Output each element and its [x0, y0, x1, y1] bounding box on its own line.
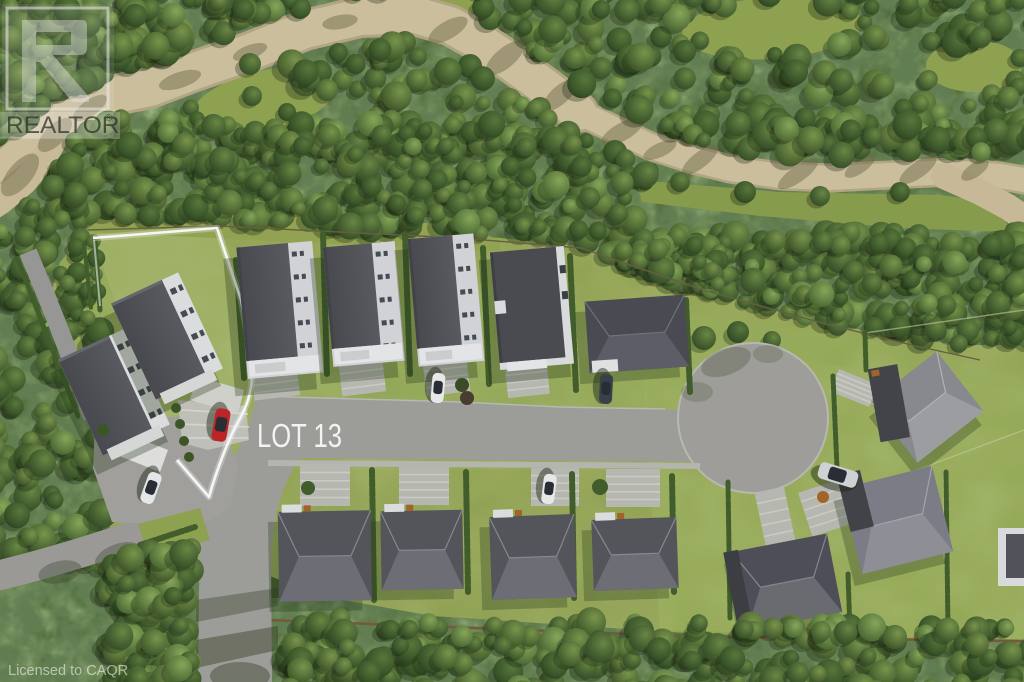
svg-text:Licensed to CAQR: Licensed to CAQR — [8, 663, 128, 679]
svg-text:REALTOR: REALTOR — [6, 112, 119, 139]
svg-text:®: ® — [105, 113, 113, 124]
svg-text:LOT 13: LOT 13 — [257, 417, 342, 454]
